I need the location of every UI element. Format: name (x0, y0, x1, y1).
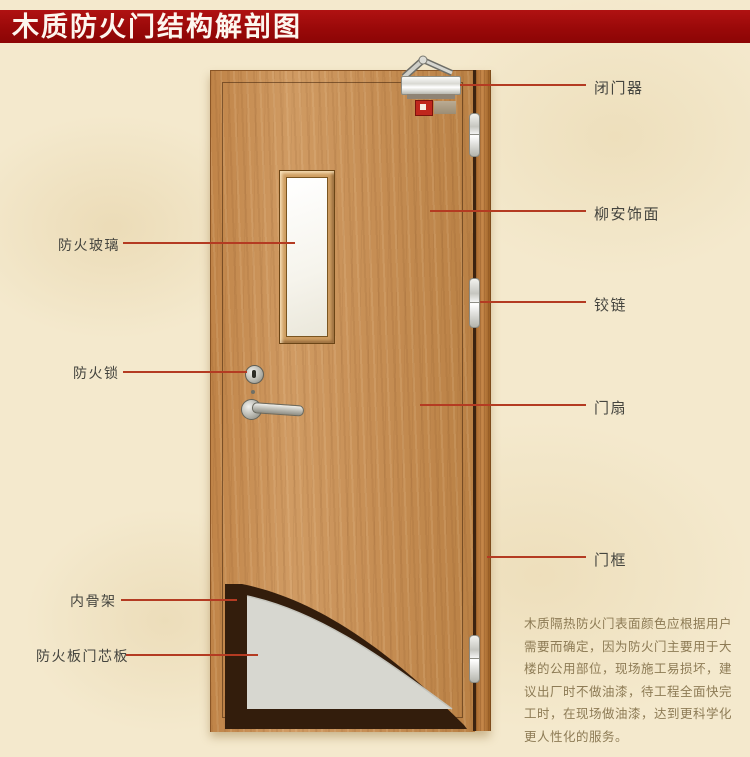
door-frame (476, 70, 491, 731)
exit-indicator-dot (420, 104, 426, 110)
screw-dot (251, 390, 255, 394)
label-lauan-veneer: 柳安饰面 (594, 203, 660, 224)
label-door-closer: 闭门器 (594, 77, 644, 98)
description-line: 木质隔热防火门表面颜色应根据用户 (524, 613, 720, 636)
wall-strike-block (434, 101, 456, 114)
description-panel: 木质隔热防火门表面颜色应根据用户 需要而确定，因为防火门主要用于大 楼的公用部位… (524, 613, 720, 748)
label-hinge: 铰链 (594, 294, 627, 315)
pointer-line-fire-glass (123, 242, 295, 244)
label-door-leaf: 门扇 (594, 397, 627, 418)
hinge-top (469, 113, 480, 157)
description-line: 需要而确定，因为防火门主要用于大 (524, 636, 720, 659)
label-inner-skeleton: 内骨架 (70, 591, 117, 611)
pointer-line-door-leaf (420, 404, 586, 406)
page-title: 木质防火门结构解剖图 (12, 11, 302, 44)
door-closer-base-plate (407, 94, 455, 99)
pointer-line-lauan-veneer (430, 210, 586, 212)
label-fire-lock: 防火锁 (73, 363, 120, 383)
keyhole-icon (252, 370, 256, 378)
vision-panel (279, 170, 335, 344)
pointer-line-fire-board-core (126, 654, 258, 656)
fire-board-core-shape (247, 596, 452, 709)
lock-cylinder (245, 365, 264, 384)
exit-indicator (415, 100, 433, 116)
label-fire-glass: 防火玻璃 (58, 235, 120, 255)
pointer-line-hinge (480, 301, 586, 303)
fire-door-assembly (210, 70, 490, 731)
cutaway-section (220, 578, 478, 731)
label-door-frame: 门框 (594, 549, 627, 570)
pointer-line-fire-lock (123, 371, 247, 373)
description-line: 议出厂时不做油漆，待工程全面快完 (524, 681, 720, 704)
pointer-line-inner-skeleton (121, 599, 237, 601)
pointer-line-door-closer (460, 84, 586, 86)
description-line: 工时，在现场做油漆，达到更科学化 (524, 703, 720, 726)
pointer-line-door-frame (487, 556, 586, 558)
fire-glass (286, 177, 328, 337)
label-fire-board-core: 防火板门芯板 (36, 646, 129, 666)
description-line: 更人性化的服务。 (524, 726, 720, 749)
description-line: 楼的公用部位，现场施工易损坏，建 (524, 658, 720, 681)
door-closer-body (401, 76, 461, 95)
hinge-middle (469, 278, 480, 328)
